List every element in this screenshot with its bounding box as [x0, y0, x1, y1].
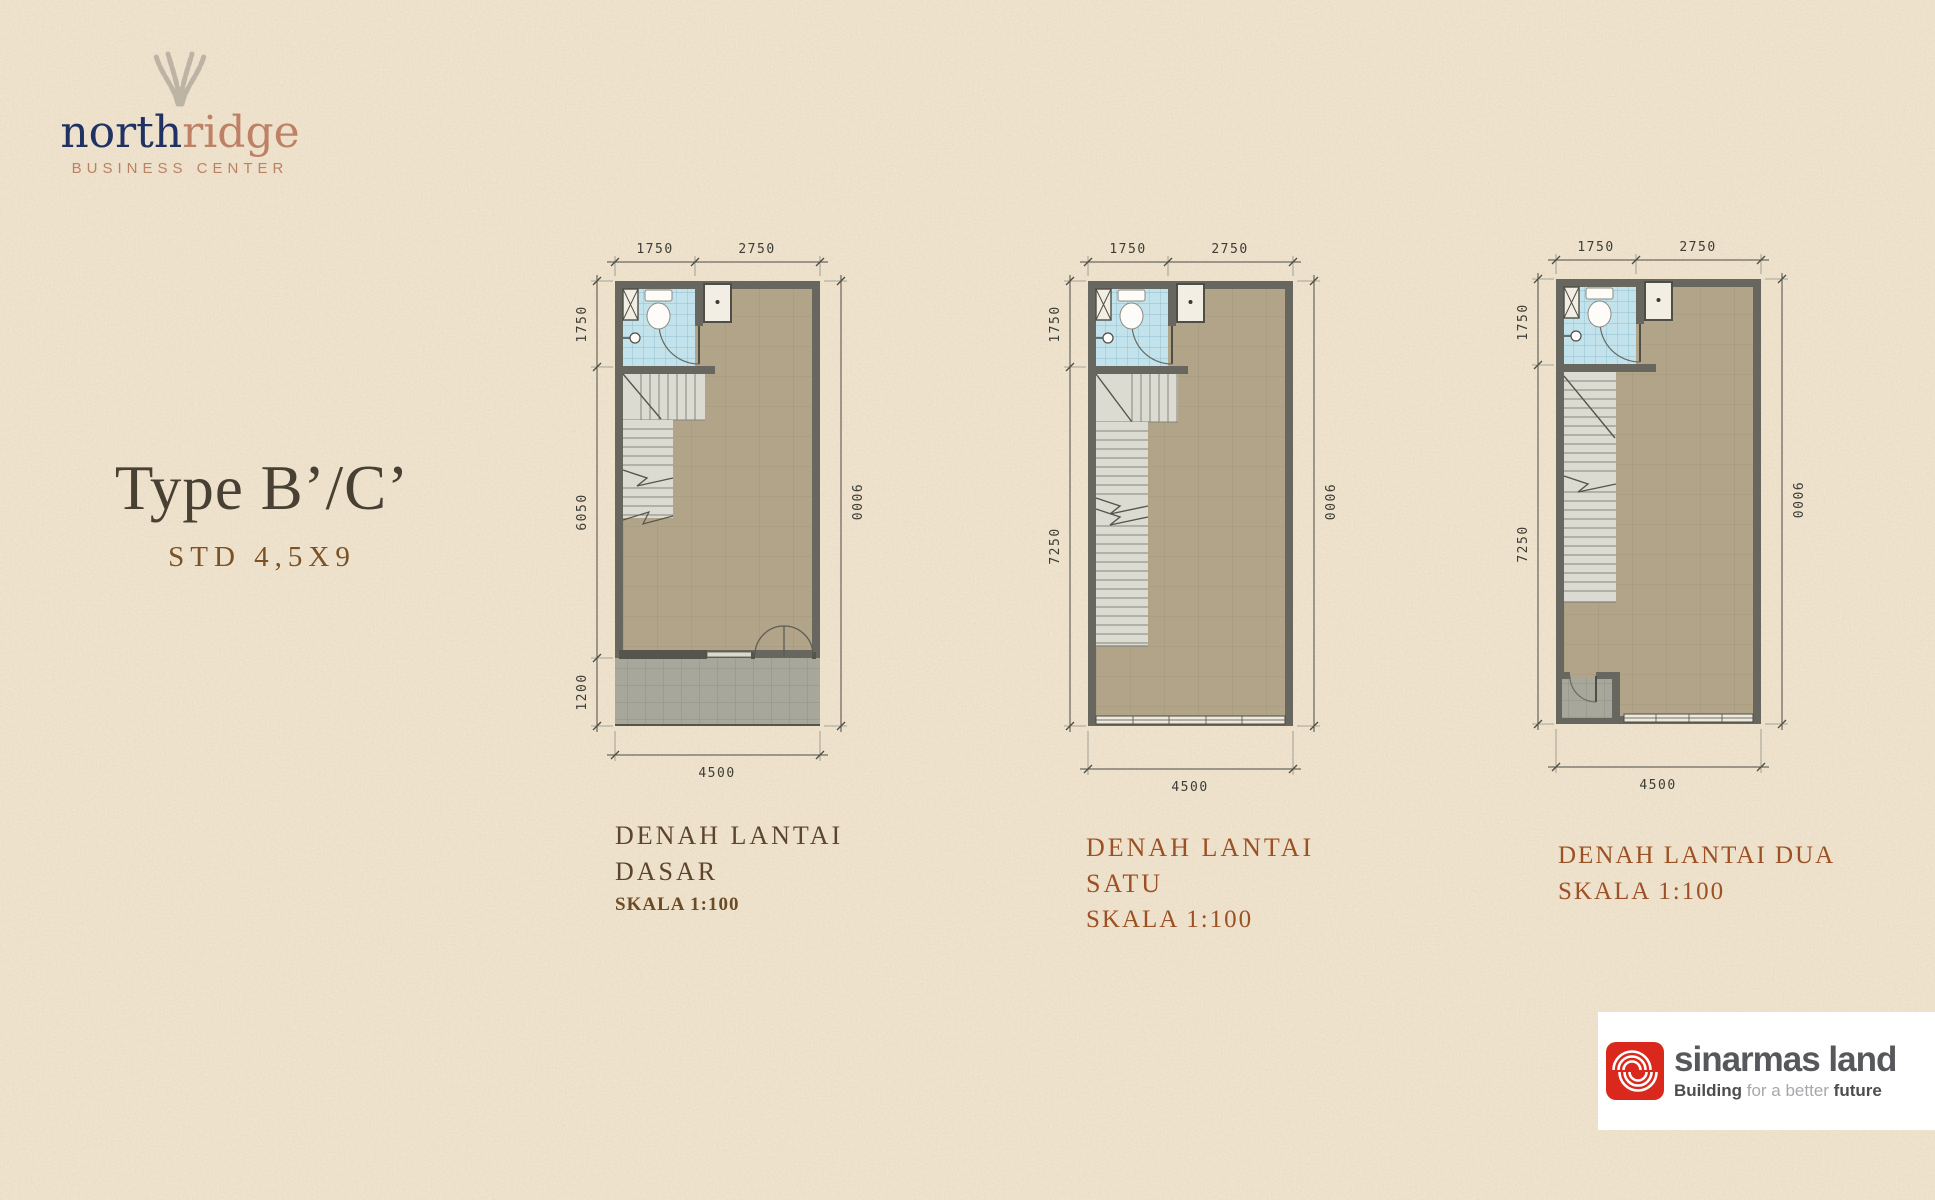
caption-scale: SKALA 1:100	[615, 890, 865, 920]
caption-line2: DASAR	[615, 854, 865, 890]
caption-line1: DENAH LANTAI	[1086, 830, 1336, 866]
dim-right: 9000	[1789, 482, 1804, 519]
dim-left-bottom: 1200	[575, 673, 590, 710]
tagline-mid: for a better	[1747, 1081, 1829, 1100]
caption-dasar: DENAH LANTAI DASAR SKALA 1:100	[615, 818, 865, 920]
caption-satu: DENAH LANTAI SATU SKALA 1:100	[1086, 830, 1336, 938]
dim-bottom: 4500	[1171, 780, 1208, 795]
dim-top-left: 1750	[1109, 242, 1146, 257]
caption-scale: SKALA 1:100	[1086, 902, 1336, 938]
caption-line2: SATU	[1086, 866, 1336, 902]
sink	[630, 333, 640, 343]
brand-word-north: north	[60, 107, 182, 158]
small-room	[1556, 672, 1620, 720]
dim-top-right: 2750	[1679, 240, 1716, 255]
sinarmas-wordmark: sinarmas land	[1674, 1042, 1896, 1077]
dim-bottom: 4500	[698, 766, 735, 781]
toilet-bowl	[647, 303, 670, 329]
dim-left-top: 1750	[1516, 303, 1531, 340]
dim-top-right: 2750	[1211, 242, 1248, 257]
wheat-icon	[144, 46, 216, 108]
dim-bottom: 4500	[1639, 778, 1676, 793]
brand-tagline: BUSINESS CENTER	[48, 160, 312, 177]
dim-left-mid: 6050	[575, 493, 590, 530]
page-subtitle: STD 4,5X9	[88, 541, 436, 574]
dim-left-main: 7250	[1048, 527, 1063, 564]
dim-right: 9000	[1321, 484, 1336, 521]
floor-plan-dua: 1750 2750 1750 7250 9000 4500	[1496, 224, 1806, 804]
sinarmas-tagline: Building for a better future	[1674, 1081, 1896, 1101]
caption-line1: DENAH LANTAI DUA	[1558, 838, 1848, 874]
caption-scale: SKALA 1:100	[1558, 874, 1848, 910]
dim-left-main: 7250	[1516, 525, 1531, 562]
dim-top-left: 1750	[636, 242, 673, 257]
sinarmas-panel: sinarmas land Building for a better futu…	[1598, 1012, 1935, 1130]
brand-wordmark: northridge	[48, 110, 312, 156]
page: northridge BUSINESS CENTER Type B’/C’ ST…	[0, 0, 1935, 1200]
brand-word-ridge: ridge	[182, 107, 299, 158]
toilet-tank	[645, 290, 672, 301]
window-band	[1096, 716, 1285, 724]
tagline-building: Building	[1674, 1081, 1742, 1100]
brand-logo: northridge BUSINESS CENTER	[48, 46, 312, 177]
dim-top-left: 1750	[1577, 240, 1614, 255]
sinarmas-logo-icon	[1606, 1042, 1664, 1100]
caption-dua: DENAH LANTAI DUA SKALA 1:100	[1558, 838, 1848, 910]
floor-plan-satu: 1750 2750 1750 7250 9000 4500	[1028, 226, 1338, 806]
floor-plan-dasar: 1750 2750 1750 6050 1200 9000 4500	[555, 226, 865, 806]
page-title: Type B’/C’	[88, 452, 436, 525]
dim-top-right: 2750	[738, 242, 775, 257]
sinarmas-texts: sinarmas land Building for a better futu…	[1674, 1042, 1896, 1101]
tagline-future: future	[1834, 1081, 1882, 1100]
title-block: Type B’/C’ STD 4,5X9	[88, 452, 436, 574]
dim-left-top: 1750	[1048, 305, 1063, 342]
dim-right: 9000	[848, 484, 863, 521]
window-band	[1624, 714, 1753, 722]
caption-line1: DENAH LANTAI	[615, 818, 865, 854]
stairs	[1564, 372, 1616, 602]
dim-left-top: 1750	[575, 305, 590, 342]
